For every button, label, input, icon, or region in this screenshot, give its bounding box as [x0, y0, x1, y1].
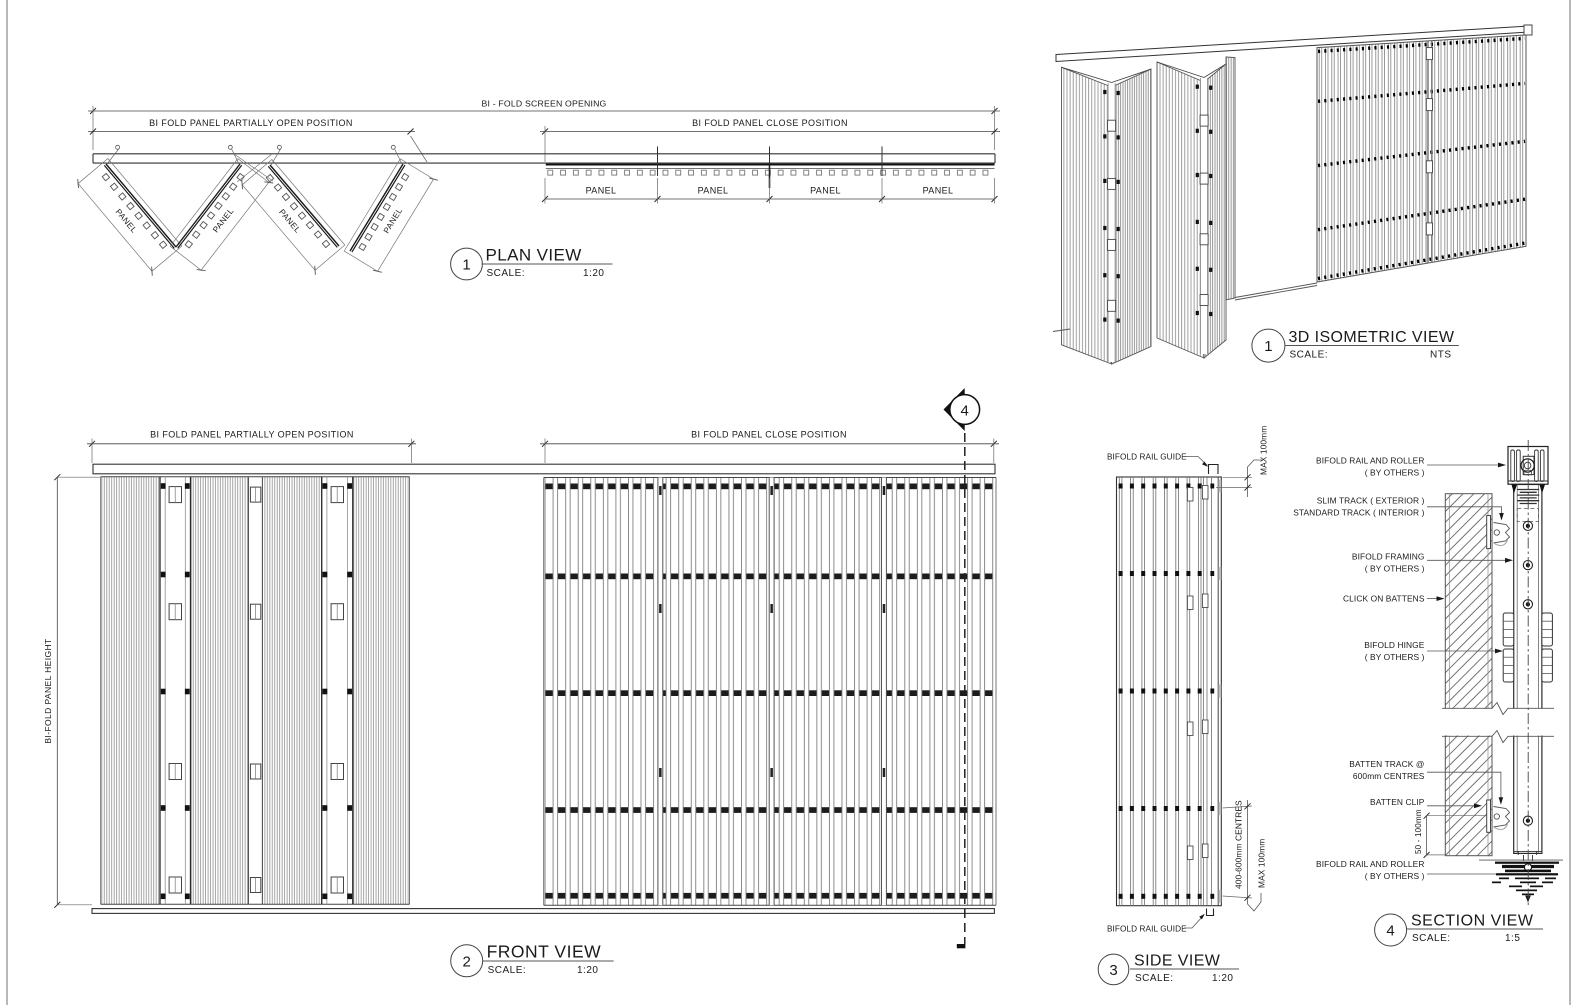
- svg-text:BI FOLD PANEL CLOSE POSITION: BI FOLD PANEL CLOSE POSITION: [691, 430, 847, 440]
- svg-text:FRONT VIEW: FRONT VIEW: [487, 942, 602, 962]
- svg-text:4: 4: [961, 402, 969, 419]
- svg-text:( BY OTHERS ): ( BY OTHERS ): [1365, 871, 1425, 881]
- svg-text:1:20: 1:20: [583, 268, 604, 279]
- svg-text:50 - 100mm: 50 - 100mm: [1414, 809, 1423, 854]
- svg-text:SCALE:: SCALE:: [1135, 973, 1174, 984]
- svg-text:( BY OTHERS ): ( BY OTHERS ): [1365, 564, 1425, 574]
- svg-text:BIFOLD FRAMING: BIFOLD FRAMING: [1352, 552, 1425, 562]
- svg-text:BI FOLD PANEL PARTIALLY OPEN P: BI FOLD PANEL PARTIALLY OPEN POSITION: [150, 430, 354, 440]
- svg-text:PANEL: PANEL: [586, 186, 617, 196]
- svg-text:BIFOLD RAIL GUIDE: BIFOLD RAIL GUIDE: [1107, 453, 1187, 462]
- svg-text:PANEL: PANEL: [698, 186, 729, 196]
- svg-text:PANEL: PANEL: [810, 186, 841, 196]
- svg-text:BIFOLD RAIL AND ROLLER: BIFOLD RAIL AND ROLLER: [1316, 859, 1424, 869]
- svg-text:CLICK ON BATTENS: CLICK ON BATTENS: [1343, 594, 1425, 604]
- svg-text:PLAN VIEW: PLAN VIEW: [486, 246, 582, 265]
- svg-text:BI-FOLD PANEL HEIGHT: BI-FOLD PANEL HEIGHT: [43, 638, 53, 743]
- svg-text:3: 3: [1109, 962, 1117, 979]
- svg-text:BIFOLD HINGE: BIFOLD HINGE: [1364, 640, 1425, 650]
- svg-text:MAX 100mm: MAX 100mm: [1259, 426, 1269, 475]
- svg-text:( BY OTHERS ): ( BY OTHERS ): [1365, 652, 1425, 662]
- svg-text:1:20: 1:20: [1212, 973, 1233, 984]
- svg-text:400-600mm CENTRES: 400-600mm CENTRES: [1234, 800, 1244, 889]
- svg-text:BI - FOLD SCREEN OPENING: BI - FOLD SCREEN OPENING: [482, 99, 607, 109]
- svg-text:SIDE VIEW: SIDE VIEW: [1134, 953, 1221, 970]
- svg-text:BATTEN TRACK @: BATTEN TRACK @: [1349, 759, 1424, 769]
- svg-text:BIFOLD RAIL GUIDE: BIFOLD RAIL GUIDE: [1107, 925, 1187, 934]
- svg-text:BIFOLD RAIL AND ROLLER: BIFOLD RAIL AND ROLLER: [1316, 456, 1424, 466]
- svg-text:4: 4: [1386, 923, 1394, 940]
- svg-text:( BY OTHERS ): ( BY OTHERS ): [1365, 468, 1425, 478]
- svg-text:BATTEN CLIP: BATTEN CLIP: [1370, 797, 1425, 807]
- svg-text:1: 1: [1264, 338, 1272, 355]
- svg-text:SCALE:: SCALE:: [487, 268, 526, 279]
- svg-text:SCALE:: SCALE:: [1412, 933, 1451, 944]
- svg-text:BI FOLD PANEL PARTIALLY OPEN P: BI FOLD PANEL PARTIALLY OPEN POSITION: [149, 118, 353, 128]
- svg-text:BI FOLD PANEL CLOSE POSITION: BI FOLD PANEL CLOSE POSITION: [692, 118, 848, 128]
- svg-text:2: 2: [463, 953, 471, 970]
- svg-text:SECTION VIEW: SECTION VIEW: [1411, 913, 1534, 930]
- svg-text:3D ISOMETRIC VIEW: 3D ISOMETRIC VIEW: [1289, 329, 1455, 346]
- svg-text:MAX 100mm: MAX 100mm: [1257, 839, 1267, 888]
- svg-text:SLIM TRACK ( EXTERIOR ): SLIM TRACK ( EXTERIOR ): [1317, 496, 1425, 506]
- svg-text:1: 1: [462, 257, 470, 274]
- svg-text:1:20: 1:20: [577, 965, 598, 976]
- svg-text:600mm CENTRES: 600mm CENTRES: [1353, 771, 1425, 781]
- svg-text:SCALE:: SCALE:: [488, 965, 527, 976]
- svg-text:SCALE:: SCALE:: [1290, 350, 1329, 361]
- svg-text:PANEL: PANEL: [923, 186, 954, 196]
- svg-text:NTS: NTS: [1430, 350, 1452, 361]
- svg-text:STANDARD TRACK ( INTERIOR ): STANDARD TRACK ( INTERIOR ): [1293, 508, 1424, 518]
- svg-text:1:5: 1:5: [1505, 933, 1520, 944]
